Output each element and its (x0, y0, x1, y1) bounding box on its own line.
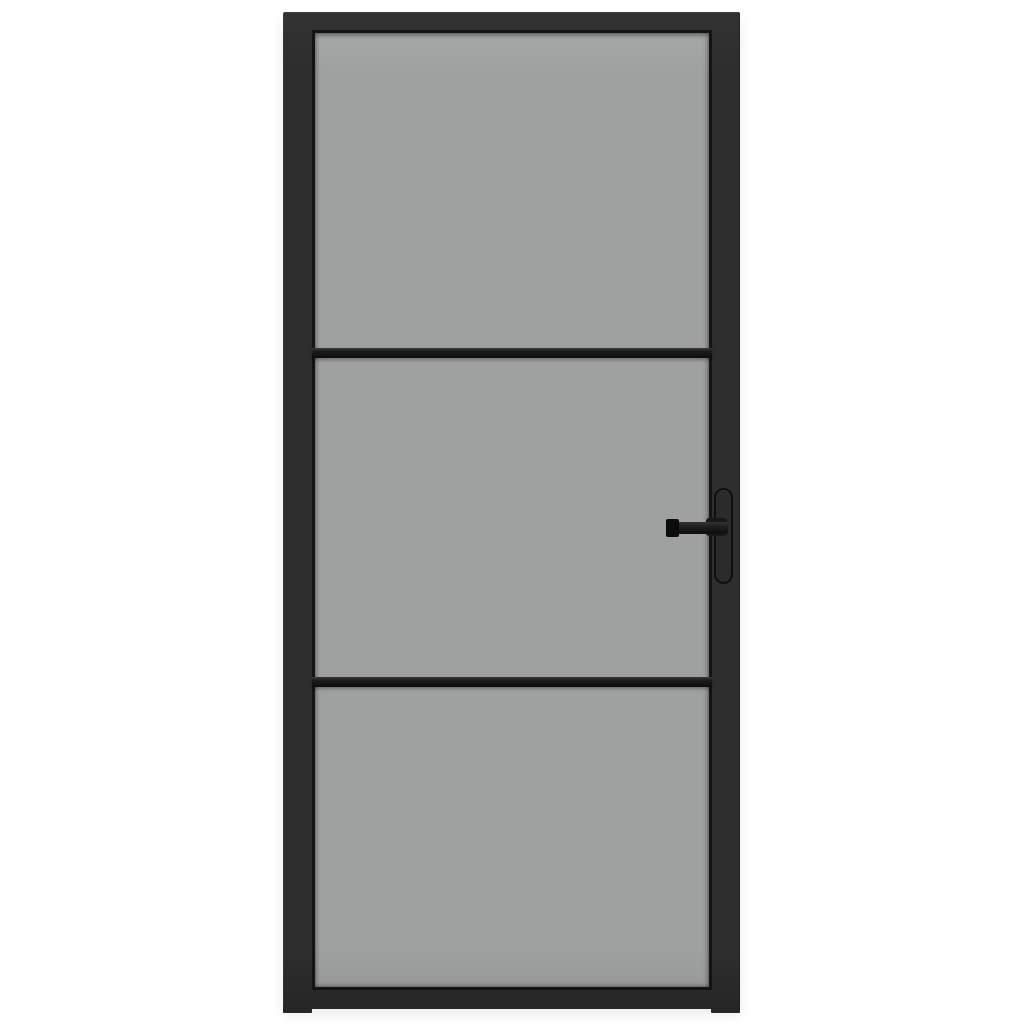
glazing-bar-upper (312, 348, 712, 358)
handle-backplate (714, 488, 733, 584)
interior-door (283, 12, 740, 1009)
glazing-bar-lower (312, 677, 712, 687)
frame-foot-left (283, 1006, 312, 1013)
lever-handle-endcap (666, 519, 679, 537)
product-photo-canvas (0, 0, 1024, 1024)
door-glazing (312, 30, 712, 990)
frame-foot-right (711, 1006, 740, 1013)
